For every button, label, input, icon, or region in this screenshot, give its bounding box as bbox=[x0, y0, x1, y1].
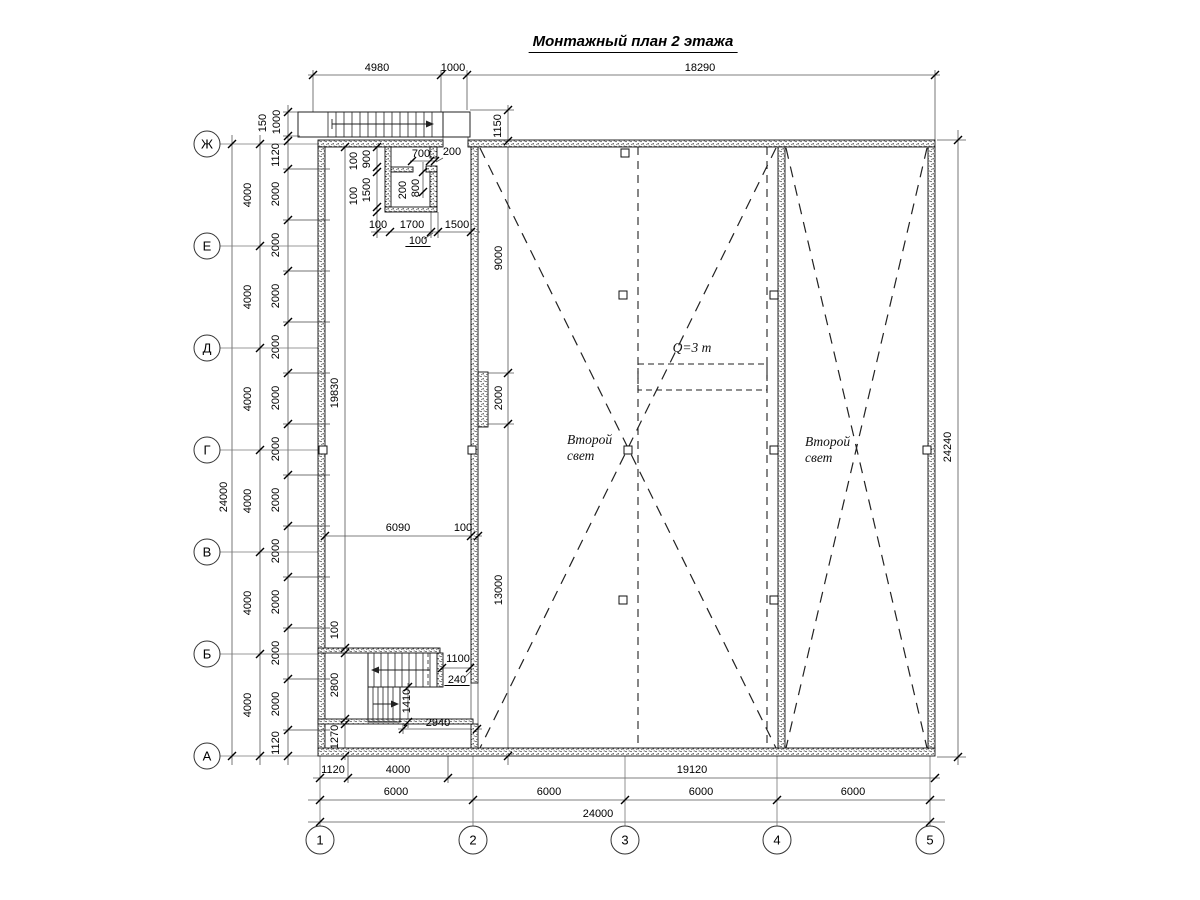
dimension-label: 100 bbox=[348, 187, 360, 205]
dimension-label: 1150 bbox=[492, 114, 504, 138]
dimension-label: 2800 bbox=[329, 673, 341, 697]
dimension-label: 700 bbox=[412, 148, 430, 160]
dimension-label: 2000 bbox=[270, 590, 282, 614]
dimension-label: 100 bbox=[329, 621, 341, 639]
dimension-label: 1500 bbox=[361, 178, 373, 202]
dimension-label: 100 bbox=[454, 522, 472, 534]
dimension-label: 2000 bbox=[270, 539, 282, 563]
dimension-label: 1120 bbox=[321, 764, 345, 776]
dimension-label: 4000 bbox=[242, 693, 254, 717]
void-label: свет bbox=[567, 448, 595, 463]
dimension-ticks bbox=[228, 71, 962, 826]
dimension-label: 2000 bbox=[270, 335, 282, 359]
dimension-label: 240 bbox=[448, 674, 466, 686]
dimension-label: 24000 bbox=[218, 482, 230, 513]
dimension-label: 19120 bbox=[677, 764, 708, 776]
dimension-label: 24000 bbox=[583, 808, 614, 820]
dimension-label: 2000 bbox=[270, 488, 282, 512]
axis-bubble-label: 3 bbox=[621, 833, 628, 848]
void-label: свет bbox=[805, 450, 833, 465]
dimension-label: 6000 bbox=[689, 786, 713, 798]
dimension-label: 1500 bbox=[445, 219, 469, 231]
dimension-label: 2000 bbox=[270, 641, 282, 665]
arrow-head-right-icon bbox=[391, 701, 399, 708]
dimension-label: 200 bbox=[397, 181, 409, 199]
dimension-label: 2000 bbox=[493, 386, 505, 410]
dimension-label: 4000 bbox=[242, 591, 254, 615]
dimension-label: 4000 bbox=[242, 285, 254, 309]
dimension-label: 4000 bbox=[386, 764, 410, 776]
axis-bubble-label: Б bbox=[203, 647, 212, 662]
dimension-label: 1270 bbox=[329, 725, 341, 749]
dimension-label: 4000 bbox=[242, 183, 254, 207]
dimension-label: 200 bbox=[443, 146, 461, 158]
dimension-label: 4000 bbox=[242, 387, 254, 411]
axis-bubble-label: Ж bbox=[201, 137, 213, 152]
crane-zone bbox=[638, 364, 767, 390]
dimension-label: 2000 bbox=[270, 182, 282, 206]
dimension-label: 1700 bbox=[400, 219, 424, 231]
dimension-label: 100 bbox=[369, 219, 387, 231]
dimension-label: 6000 bbox=[537, 786, 561, 798]
dimension-label: 1120 bbox=[270, 143, 282, 167]
axis-bubble-label: 4 bbox=[773, 833, 780, 848]
dimension-label: 2000 bbox=[270, 386, 282, 410]
dimension-label: 24240 bbox=[942, 432, 954, 463]
dimension-label: 800 bbox=[410, 179, 422, 197]
void-label: Второй bbox=[805, 434, 850, 449]
dimension-label: 19830 bbox=[329, 378, 341, 409]
dimension-label: 2000 bbox=[270, 437, 282, 461]
dimension-label: 9000 bbox=[493, 246, 505, 270]
dimension-label: 6090 bbox=[386, 522, 410, 534]
axis-bubble-label: 5 bbox=[926, 833, 933, 848]
dimension-label: 1120 bbox=[270, 731, 282, 755]
room-labels: Q=3 тВторойсветВторойсвет bbox=[567, 340, 850, 465]
dimension-label: 4000 bbox=[242, 489, 254, 513]
dimension-label: 900 bbox=[361, 150, 373, 168]
dimension-label: 1100 bbox=[446, 653, 470, 665]
axis-bubble-label: Д bbox=[203, 341, 212, 356]
dashed-markings bbox=[428, 147, 927, 748]
dimension-label: 100 bbox=[348, 152, 360, 170]
dimension-label: 1410 bbox=[401, 689, 413, 713]
dimension-label: 100 bbox=[409, 235, 427, 247]
dimension-label: 1000 bbox=[271, 110, 283, 134]
axis-bubble-label: 1 bbox=[316, 833, 323, 848]
dimension-label: 18290 bbox=[685, 62, 716, 74]
dimension-label: 6000 bbox=[384, 786, 408, 798]
axis-bubble-label: 2 bbox=[469, 833, 476, 848]
dimension-label: 6000 bbox=[841, 786, 865, 798]
dimension-label: 4980 bbox=[365, 62, 389, 74]
dimension-label: 2940 bbox=[426, 717, 450, 729]
axis-bubbles: ЖЕДГВБА12345 bbox=[194, 131, 944, 854]
dimension-label: 150 bbox=[257, 114, 269, 132]
crane-capacity-label: Q=3 т bbox=[673, 340, 712, 355]
arrow-head-right-icon bbox=[426, 121, 434, 128]
void-label: Второй bbox=[567, 432, 612, 447]
axis-bubble-label: Г bbox=[203, 443, 210, 458]
axis-bubble-label: Е bbox=[203, 239, 212, 254]
drawing-sheet: Монтажный план 2 этажа bbox=[0, 0, 1200, 900]
dimension-label: 2000 bbox=[270, 233, 282, 257]
floor-plan-canvas: 4980100018290150100011502400040004000400… bbox=[0, 0, 1200, 900]
dimension-label: 13000 bbox=[493, 575, 505, 606]
dimension-label: 2000 bbox=[270, 692, 282, 716]
dimension-label: 2000 bbox=[270, 284, 282, 308]
axis-bubble-label: А bbox=[203, 749, 212, 764]
arrow-head-left-icon bbox=[371, 667, 379, 674]
dimension-label: 1000 bbox=[441, 62, 465, 74]
axis-bubble-label: В bbox=[203, 545, 212, 560]
